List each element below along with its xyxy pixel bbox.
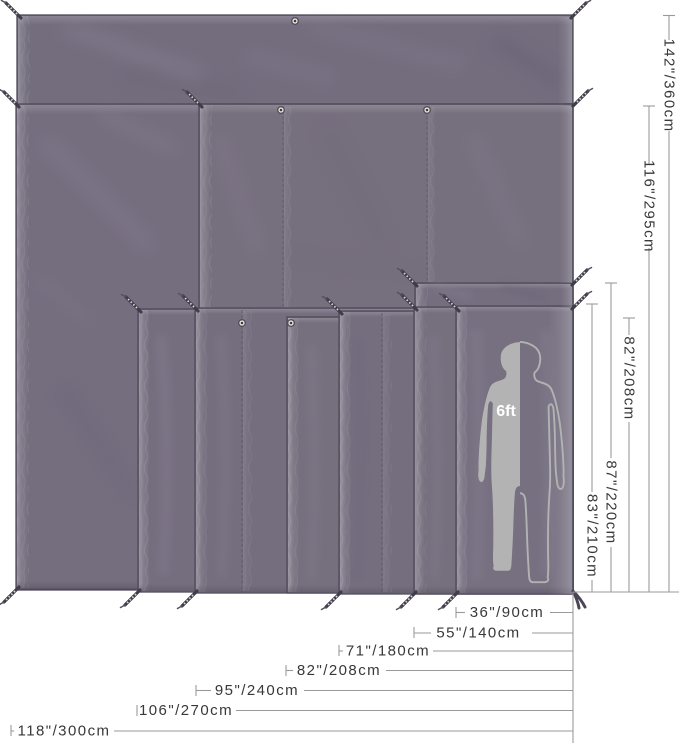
- svg-text:118"/300cm: 118"/300cm: [18, 723, 111, 740]
- svg-text:87"/220cm: 87"/220cm: [603, 460, 620, 544]
- svg-text:106"/270cm: 106"/270cm: [139, 702, 233, 719]
- svg-text:82"/208cm: 82"/208cm: [621, 336, 638, 420]
- svg-text:116"/295cm: 116"/295cm: [641, 160, 658, 253]
- svg-text:82"/208cm: 82"/208cm: [297, 662, 381, 679]
- svg-text:36"/90cm: 36"/90cm: [470, 604, 544, 621]
- svg-text:6ft: 6ft: [496, 403, 516, 420]
- svg-text:55"/140cm: 55"/140cm: [436, 625, 520, 642]
- svg-text:142"/360cm: 142"/360cm: [661, 38, 678, 132]
- svg-text:71"/180cm: 71"/180cm: [346, 643, 430, 660]
- svg-text:83"/210cm: 83"/210cm: [584, 494, 601, 578]
- svg-text:95"/240cm: 95"/240cm: [215, 682, 299, 699]
